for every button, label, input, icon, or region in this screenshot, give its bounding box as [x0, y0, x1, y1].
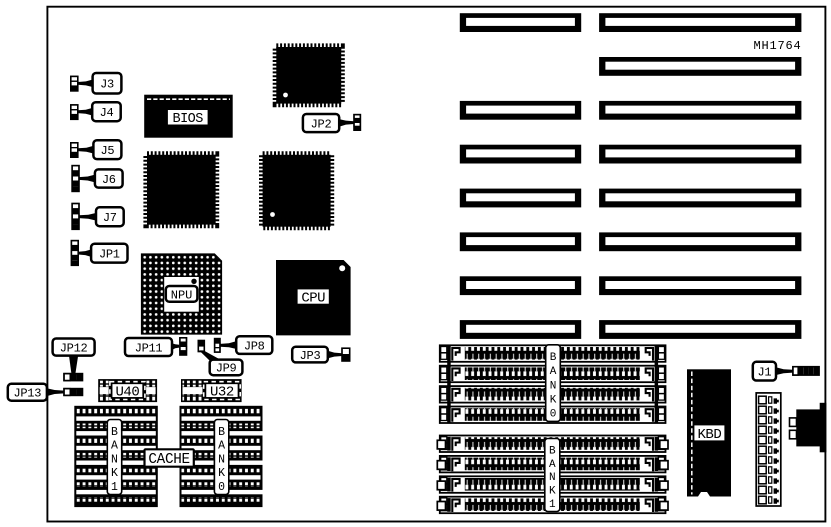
svg-text:CACHE: CACHE [148, 452, 189, 468]
svg-text:CPU: CPU [301, 291, 325, 307]
svg-text:1: 1 [111, 481, 118, 494]
svg-text:A: A [111, 440, 118, 453]
svg-text:JP9: JP9 [216, 362, 237, 376]
svg-text:K: K [218, 467, 225, 480]
svg-text:NPU: NPU [171, 288, 193, 302]
svg-text:N: N [218, 453, 225, 466]
svg-text:A: A [550, 366, 557, 378]
svg-text:JP11: JP11 [135, 341, 163, 355]
svg-text:BIOS: BIOS [172, 112, 203, 127]
svg-text:K: K [550, 395, 557, 407]
svg-text:JP12: JP12 [60, 341, 88, 355]
svg-text:J7: J7 [103, 211, 117, 225]
svg-text:K: K [111, 467, 118, 480]
svg-text:N: N [550, 380, 557, 392]
svg-text:A: A [549, 459, 556, 471]
svg-text:A: A [218, 440, 225, 453]
svg-text:J6: J6 [102, 173, 116, 187]
svg-text:J4: J4 [100, 106, 114, 120]
svg-text:B: B [549, 445, 556, 457]
svg-text:0: 0 [218, 481, 225, 494]
svg-text:JP13: JP13 [13, 387, 41, 401]
svg-text:J5: J5 [100, 144, 114, 158]
svg-text:B: B [550, 352, 557, 364]
svg-text:U32: U32 [210, 384, 234, 400]
svg-text:JP1: JP1 [99, 248, 120, 262]
svg-text:N: N [111, 453, 118, 466]
svg-text:J3: J3 [100, 78, 114, 92]
svg-text:0: 0 [550, 409, 557, 421]
svg-text:B: B [218, 426, 225, 439]
svg-text:U40: U40 [116, 384, 140, 400]
svg-text:1: 1 [549, 499, 556, 511]
svg-text:B: B [111, 426, 118, 439]
svg-text:MH1764: MH1764 [754, 39, 802, 53]
svg-text:KBD: KBD [698, 427, 722, 443]
svg-text:JP8: JP8 [244, 339, 265, 353]
svg-text:JP2: JP2 [311, 117, 332, 131]
svg-text:N: N [549, 472, 556, 484]
svg-text:K: K [549, 486, 556, 498]
svg-text:J1: J1 [757, 366, 771, 380]
svg-text:JP3: JP3 [300, 349, 321, 363]
